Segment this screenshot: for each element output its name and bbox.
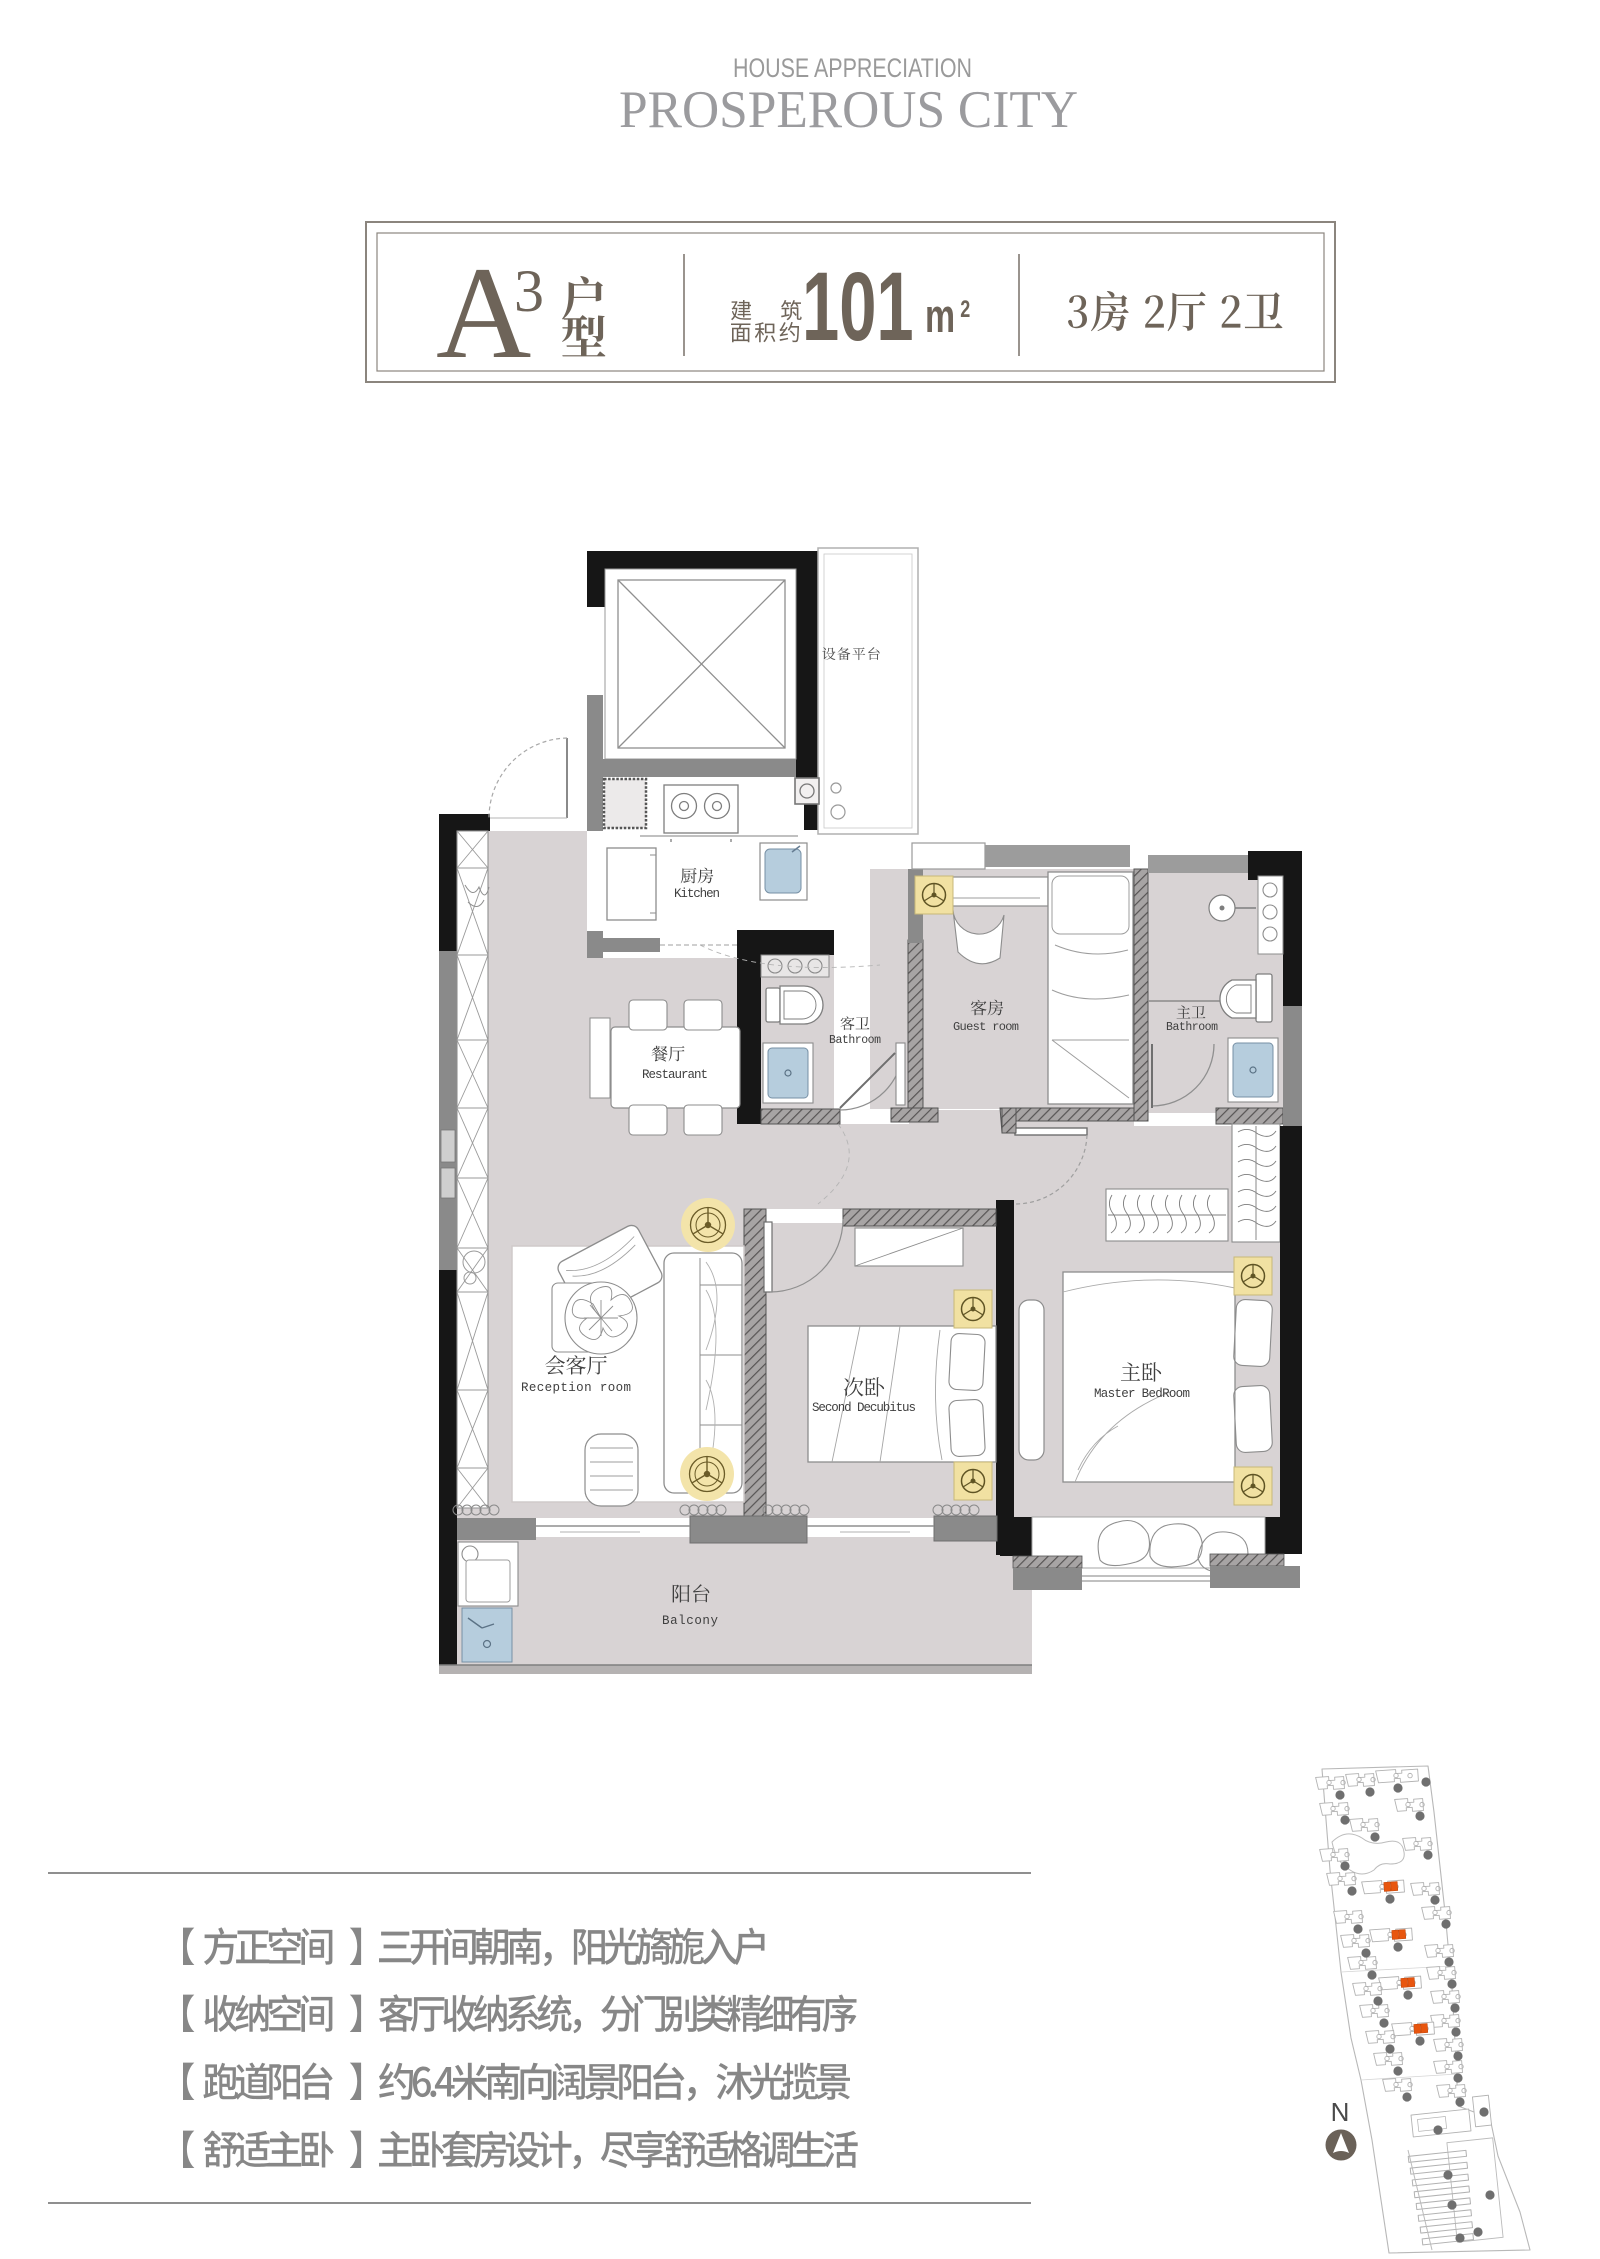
svg-text:Kitchen: Kitchen (674, 887, 720, 901)
svg-text:Reception room: Reception room (521, 1381, 631, 1395)
svg-text:Balcony: Balcony (662, 1614, 718, 1628)
svg-text:Master BedRoom: Master BedRoom (1094, 1387, 1190, 1401)
svg-text:HOUSE APPRECIATION: HOUSE APPRECIATION (733, 53, 972, 83)
svg-text:PROSPEROUS CITY: PROSPEROUS CITY (619, 81, 1078, 139)
svg-text:Restaurant: Restaurant (642, 1068, 708, 1082)
svg-text:Guest room: Guest room (953, 1020, 1019, 1034)
svg-text:Second Decubitus: Second Decubitus (812, 1401, 916, 1415)
svg-text:2: 2 (960, 297, 970, 323)
svg-text:3: 3 (514, 258, 544, 324)
svg-text:101: 101 (802, 253, 914, 361)
svg-text:N: N (1331, 2097, 1350, 2127)
svg-text:m: m (925, 290, 955, 343)
svg-text:Bathroom: Bathroom (1166, 1021, 1218, 1034)
svg-text:Bathroom: Bathroom (829, 1034, 881, 1047)
